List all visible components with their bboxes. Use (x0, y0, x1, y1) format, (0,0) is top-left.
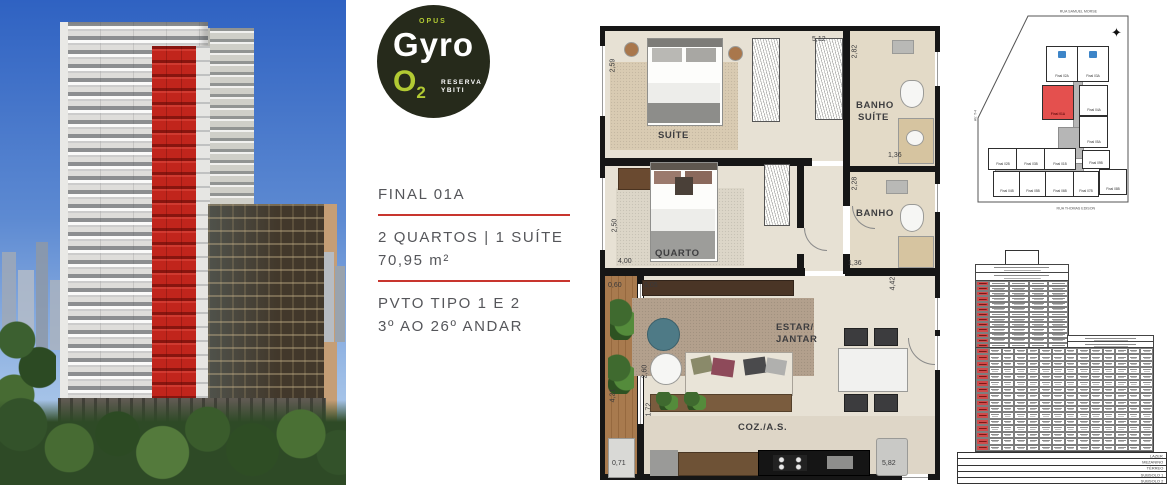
dim-sala-right: 4,42 (889, 277, 896, 291)
stack-cell (1115, 445, 1128, 451)
dining-table (838, 348, 908, 392)
suite-bed (647, 38, 723, 126)
label-coz: COZ./A.S. (738, 422, 787, 433)
label-banho: BANHO (856, 208, 894, 219)
stack-upper-grid (975, 280, 1069, 349)
highlighted-unit-stack-red (152, 46, 196, 432)
unit-b04: Final 04B (993, 171, 1021, 197)
dim-quarto-h: 2,50 (611, 219, 618, 233)
wall-quarto-estar (600, 268, 805, 276)
unit-a03: Final 03A (1077, 46, 1109, 82)
street-bottom-label: RUA THOMAS EDISON (1057, 206, 1096, 210)
toilet-icon (900, 204, 924, 232)
logo-opus-text: OPUS (419, 18, 447, 25)
dim-estar-top: 6,05 (644, 282, 658, 289)
pool-icon-2 (1089, 51, 1097, 58)
stack-base-label: LAZER (1150, 453, 1163, 458)
dim-varanda-h: 4,21 (609, 389, 616, 403)
dim-banho-w: 1,36 (848, 260, 862, 267)
dim-hall-h: 1,72 (645, 403, 652, 417)
window-banho (935, 184, 940, 212)
stack-base-label: TÉRREO (1146, 466, 1163, 471)
wall-closet-banhosuite (843, 26, 850, 166)
window-suite (600, 46, 605, 116)
stove-icon (773, 455, 807, 471)
unit-a01-highlight: Final 01A (1042, 85, 1074, 120)
dim-quarto-w: 4,00 (618, 258, 632, 265)
toilet-suite-icon (900, 80, 924, 108)
background-tower (208, 28, 254, 223)
unit-b01: Final 01B (1044, 148, 1076, 170)
unit-final-label: FINAL 01A (378, 186, 588, 203)
logo-gyro-text: Gyro (377, 26, 490, 64)
stack-cell (1039, 445, 1052, 451)
wardrobe-suite-2 (815, 38, 843, 120)
logo-o2-text: O2 (393, 65, 426, 103)
dim-varanda-top: 0,60 (608, 282, 622, 289)
label-estar-1: ESTAR/ (776, 322, 814, 333)
dim-banho-h: 2,28 (851, 177, 858, 191)
pool-icon-1 (1058, 51, 1066, 58)
side-table-icon (650, 353, 682, 385)
stack-lower-grid (975, 347, 1154, 452)
street-top-label: RUA SAMUEL MORSE (1060, 9, 1097, 13)
wall-hall-banho-a (843, 172, 850, 206)
red-divider-2 (378, 280, 570, 282)
window-estar (935, 298, 940, 330)
stack-plan: LAZERMEZANINOTÉRREOSUBSOLO 1SUBSOLO 2 (957, 250, 1165, 483)
chair-1 (844, 328, 868, 346)
unit-b02: Final 02B (988, 148, 1018, 170)
window-quarto (600, 178, 605, 250)
dim-banho-suite-h: 2,82 (851, 45, 858, 59)
gyro-o2-logo: OPUS Gyro O2 RESERVAYBITI (377, 5, 490, 118)
unit-b07: Final 07B (1073, 171, 1099, 197)
dim-coz-w: 5,82 (882, 460, 896, 467)
sink-counter (898, 236, 934, 268)
unit-floors: 3º AO 26º ANDAR (378, 318, 588, 335)
wall-banhos (843, 166, 940, 172)
floor-plan: SUÍTE QUARTO BANHO SUÍTE BANHO ESTAR/ JA… (600, 22, 940, 482)
quarto-sideboard (618, 168, 654, 190)
sink-kitchen-icon (827, 456, 853, 469)
quarto-bed (650, 162, 718, 262)
city-right (324, 252, 346, 352)
dim-varanda-bottom: 0,71 (612, 460, 626, 467)
stack-cell (976, 445, 989, 451)
dim-banho-suite-w: 1,36 (888, 152, 902, 159)
window-banho-suite (935, 52, 940, 86)
sofa (685, 352, 793, 396)
unit-rooms: 2 QUARTOS | 1 SUÍTE (378, 229, 588, 246)
fridge-icon (876, 438, 908, 476)
tv-console (642, 280, 794, 296)
shower-suite-icon (892, 40, 914, 54)
suite-lamp-left (624, 42, 639, 57)
plant-divider-2 (684, 392, 706, 410)
chair-2 (874, 328, 898, 346)
wardrobe-quarto (764, 164, 790, 226)
stack-base-row: SUBSOLO 2 (957, 477, 1167, 484)
label-banho-suite-2: SUÍTE (858, 112, 889, 123)
wall-banho-estar (845, 268, 940, 276)
unit-b08: Final 08B (1099, 169, 1127, 195)
unit-pavement: PVTO TIPO 1 E 2 (378, 295, 588, 312)
unit-b05: Final 05B (1019, 171, 1047, 197)
stack-base-label: SUBSOLO 2 (1140, 479, 1163, 484)
wall-top (600, 26, 940, 31)
stack-cell (1052, 445, 1065, 451)
plant-divider-1 (656, 392, 678, 410)
site-keyplan: RUA SAMUEL MORSE RUA THOMAS EDISON AV. T… (965, 3, 1160, 218)
stack-cell (1140, 445, 1153, 451)
kitchen-counter-wood (678, 452, 760, 476)
wardrobe-suite-1 (752, 38, 780, 122)
plant-varanda-1 (610, 298, 634, 340)
north-arrow-icon: ✦ (1111, 25, 1122, 41)
suite-lamp-right (728, 46, 743, 61)
unit-info-panel: FINAL 01A 2 QUARTOS | 1 SUÍTE 70,95 m² P… (378, 186, 588, 335)
stack-cell (989, 445, 1002, 451)
dim-closet-top: 5,12 (812, 36, 826, 43)
street-left-label: AV. T-4 (974, 110, 978, 121)
label-quarto: QUARTO (655, 248, 700, 259)
logo-tagline: RESERVAYBITI (441, 79, 482, 95)
stack-cell (1014, 445, 1027, 451)
label-suite: SUÍTE (658, 130, 689, 141)
building-render-photo (0, 0, 346, 485)
chair-3 (844, 394, 868, 412)
varanda-console (608, 438, 635, 478)
stack-cell (1065, 445, 1078, 451)
stack-base-label: MEZANINO (1142, 460, 1163, 465)
sink-suite-icon (906, 130, 924, 146)
stack-cell (1077, 445, 1090, 451)
washer-icon (650, 450, 678, 476)
pouf-icon (647, 318, 680, 351)
stack-cell (1002, 445, 1015, 451)
trees (0, 392, 346, 485)
unit-a04: Final 04A (1079, 85, 1108, 116)
wall-quarto-hall (797, 158, 804, 228)
dim-suite-width: 2,59 (609, 59, 616, 73)
stack-cell (1090, 445, 1103, 451)
unit-a02: Final 02A (1046, 46, 1078, 82)
red-divider-1 (378, 214, 570, 216)
stack-cell (1128, 445, 1141, 451)
shower-icon (886, 180, 908, 194)
unit-b03: Final 03B (1016, 148, 1046, 170)
label-estar-2: JANTAR (776, 334, 817, 345)
wall-right (935, 26, 940, 480)
chair-4 (874, 394, 898, 412)
kitchen-counter-dark (758, 450, 870, 476)
unit-a05: Final 05A (1079, 116, 1108, 148)
dim-estar-h: 2,60 (641, 365, 648, 379)
unit-b06: Final 06B (1045, 171, 1075, 197)
unit-b09: Final 09B (1082, 150, 1110, 169)
label-banho-suite-1: BANHO (856, 100, 894, 111)
door-estar (935, 336, 940, 370)
stack-cell (1027, 445, 1040, 451)
unit-area: 70,95 m² (378, 252, 588, 269)
stack-base-label: SUBSOLO 1 (1140, 472, 1163, 477)
stack-cell (1103, 445, 1116, 451)
